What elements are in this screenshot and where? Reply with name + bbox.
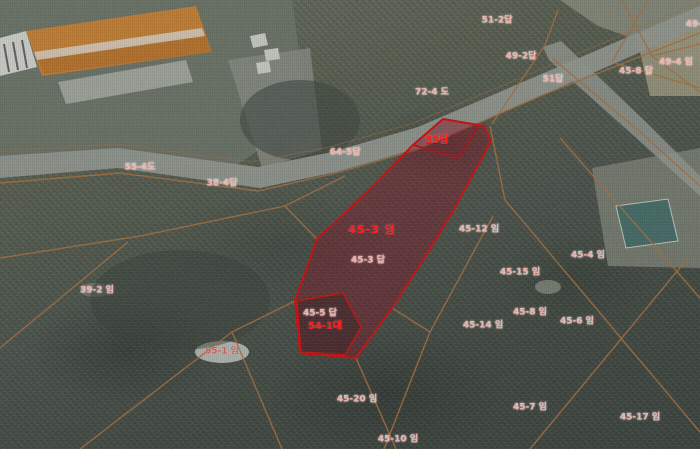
parcel-label: 49-2답: [506, 53, 537, 62]
parcel-label: 45-12 임: [459, 226, 499, 235]
parcel-label: 49-4: [686, 21, 700, 30]
parcel-label: 72-4 도: [415, 89, 449, 98]
parcel-label: 53답: [425, 136, 448, 146]
parcel-label: 45-15 임: [500, 269, 540, 278]
parcel-label: 45-10 임: [378, 436, 418, 445]
parcel-label: 54-1대: [308, 322, 342, 332]
parcel-label: 64-5답: [330, 149, 361, 158]
parcel-label: 45-17 임: [620, 414, 660, 423]
parcel-label: 45-3 임: [348, 225, 395, 236]
parcel-label: 45-6 임: [560, 318, 594, 327]
parcel-label: 55-1 임: [205, 348, 239, 357]
map-canvas[interactable]: 51-2답49-2답51답49-449-4 임45-8 답72-4 도53답64…: [0, 0, 700, 449]
parcel-label: 45-20 임: [337, 396, 377, 405]
parcel-label: 45-8 답: [619, 68, 653, 77]
parcel-label: 39-2 임: [80, 287, 114, 296]
parcel-label: 45-3 답: [351, 257, 385, 266]
parcel-label: 49-4 임: [659, 59, 693, 68]
parcel-label: 51-2답: [482, 17, 513, 26]
parcel-label: 45-5 답: [303, 310, 337, 319]
parcel-label: 45-4 임: [571, 252, 605, 261]
parcel-labels-layer: 51-2답49-2답51답49-449-4 임45-8 답72-4 도53답64…: [0, 0, 700, 449]
parcel-label: 51답: [543, 76, 564, 85]
parcel-label: 45-14 임: [463, 322, 503, 331]
parcel-label: 45-8 임: [513, 309, 547, 318]
parcel-label: 55-4도: [125, 164, 156, 173]
parcel-label: 38-4답: [207, 180, 238, 189]
parcel-label: 45-7 임: [513, 404, 547, 413]
